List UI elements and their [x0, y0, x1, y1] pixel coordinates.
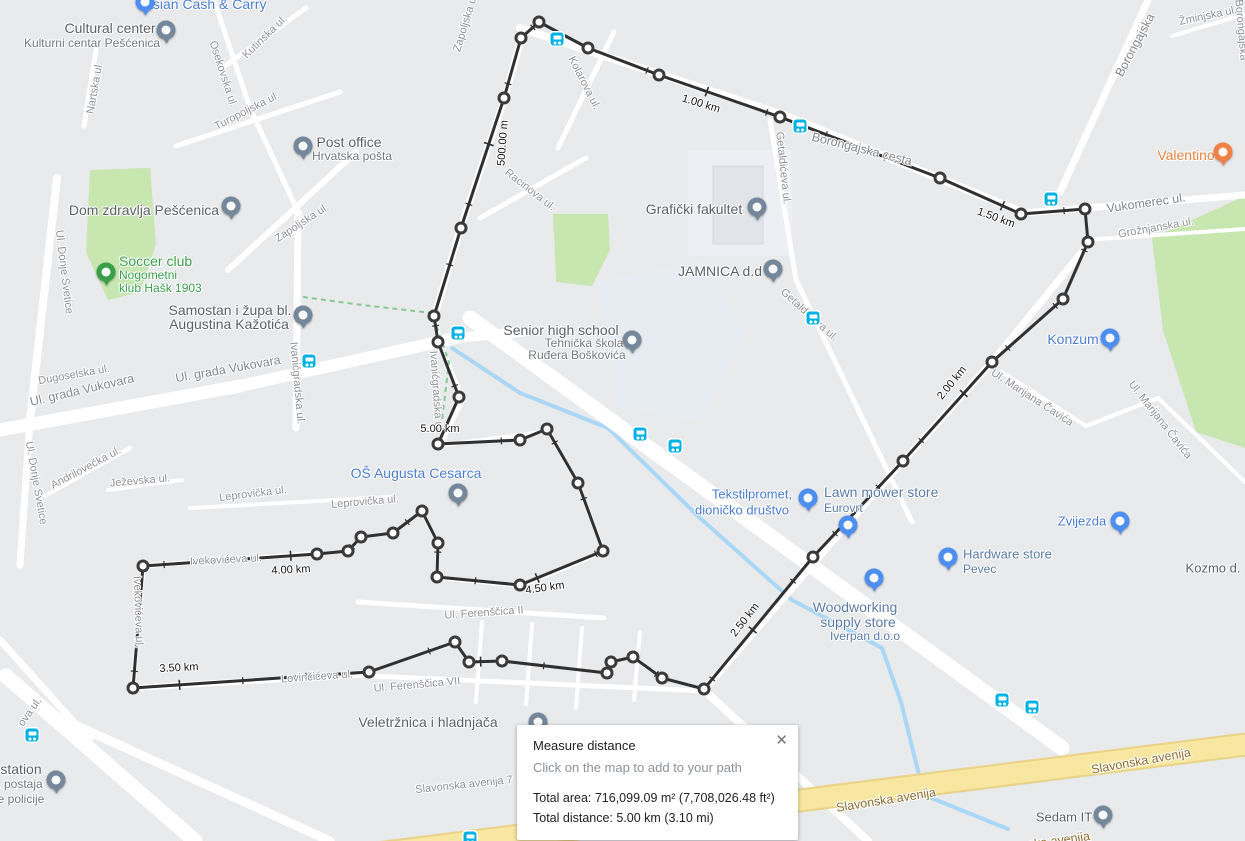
road [992, 242, 1090, 362]
park-area [86, 168, 156, 300]
park-area [553, 214, 610, 286]
path-waypoint[interactable] [432, 572, 442, 582]
path-waypoint[interactable] [534, 17, 544, 27]
road [576, 628, 582, 708]
road [796, 280, 912, 522]
popup-total-distance: Total distance: 5.00 km (3.10 mi) [533, 808, 784, 828]
path-waypoint[interactable] [388, 528, 398, 538]
popup-title: Measure distance [533, 738, 784, 753]
road [190, 497, 392, 508]
path-waypoint[interactable] [454, 392, 464, 402]
road [225, 8, 306, 66]
path-waypoint[interactable] [583, 43, 593, 53]
distance-tick [475, 577, 476, 584]
path-waypoint[interactable] [499, 93, 509, 103]
distance-tick [131, 671, 138, 672]
path-waypoint[interactable] [935, 173, 945, 183]
road [6, 676, 195, 841]
path-waypoint[interactable] [464, 657, 474, 667]
path-waypoint[interactable] [433, 538, 443, 548]
map-canvas[interactable]: Zapoljska ul.Zapoljska ul.Osekovska ul.K… [0, 0, 1245, 841]
distance-tick [136, 608, 143, 609]
path-waypoint[interactable] [808, 552, 818, 562]
road [30, 178, 57, 420]
path-waypoint[interactable] [417, 506, 427, 516]
path-waypoint[interactable] [1058, 294, 1068, 304]
road [1172, 14, 1245, 36]
building-footprint [713, 166, 763, 244]
path-waypoint[interactable] [898, 456, 908, 466]
path-waypoint[interactable] [1016, 209, 1026, 219]
road [228, 152, 356, 270]
road [1086, 398, 1158, 426]
path-waypoint[interactable] [450, 637, 460, 647]
path-waypoint[interactable] [364, 667, 374, 677]
road [84, 50, 96, 126]
road [176, 92, 340, 146]
path-waypoint[interactable] [573, 478, 583, 488]
path-waypoint[interactable] [497, 656, 507, 666]
map-graphics [0, 0, 1245, 841]
distance-tick [179, 680, 180, 690]
road [480, 158, 586, 218]
path-waypoint[interactable] [775, 112, 785, 122]
path-waypoint[interactable] [312, 549, 322, 559]
road [60, 718, 330, 841]
path-waypoint[interactable] [987, 357, 997, 367]
path-waypoint[interactable] [606, 657, 616, 667]
path-waypoint[interactable] [429, 311, 439, 321]
road [108, 480, 182, 490]
road [240, 338, 456, 386]
path-waypoint[interactable] [356, 532, 366, 542]
path-waypoint[interactable] [516, 33, 526, 43]
path-waypoint[interactable] [654, 70, 664, 80]
path-waypoint[interactable] [1083, 237, 1093, 247]
road [20, 420, 30, 565]
campus-area [598, 260, 744, 422]
path-waypoint[interactable] [433, 439, 443, 449]
distance-tick [1064, 207, 1065, 214]
path-waypoint[interactable] [657, 673, 667, 683]
road [358, 602, 604, 618]
road [296, 212, 298, 428]
path-waypoint[interactable] [128, 683, 138, 693]
road [439, 400, 462, 446]
path-waypoint[interactable] [602, 668, 612, 678]
close-icon[interactable]: ✕ [773, 731, 790, 750]
distance-tick [543, 662, 544, 669]
path-waypoint[interactable] [515, 580, 525, 590]
path-waypoint[interactable] [456, 223, 466, 233]
popup-total-area: Total area: 716,099.09 m² (7,708,026.48 … [533, 788, 784, 808]
path-waypoint[interactable] [343, 546, 353, 556]
path-waypoint[interactable] [628, 652, 638, 662]
path-waypoint[interactable] [598, 546, 608, 556]
road [250, 108, 299, 214]
path-waypoint[interactable] [699, 684, 709, 694]
path-waypoint[interactable] [138, 561, 148, 571]
path-waypoint[interactable] [515, 435, 525, 445]
road [1002, 372, 1086, 426]
road [1060, 0, 1148, 192]
path-waypoint[interactable] [1080, 204, 1090, 214]
popup-hint: Click on the map to add to your path [533, 760, 784, 775]
distance-tick [290, 551, 291, 561]
path-waypoint[interactable] [542, 424, 552, 434]
measure-popup: ✕ Measure distance Click on the map to a… [517, 725, 798, 840]
path-waypoint[interactable] [433, 337, 443, 347]
